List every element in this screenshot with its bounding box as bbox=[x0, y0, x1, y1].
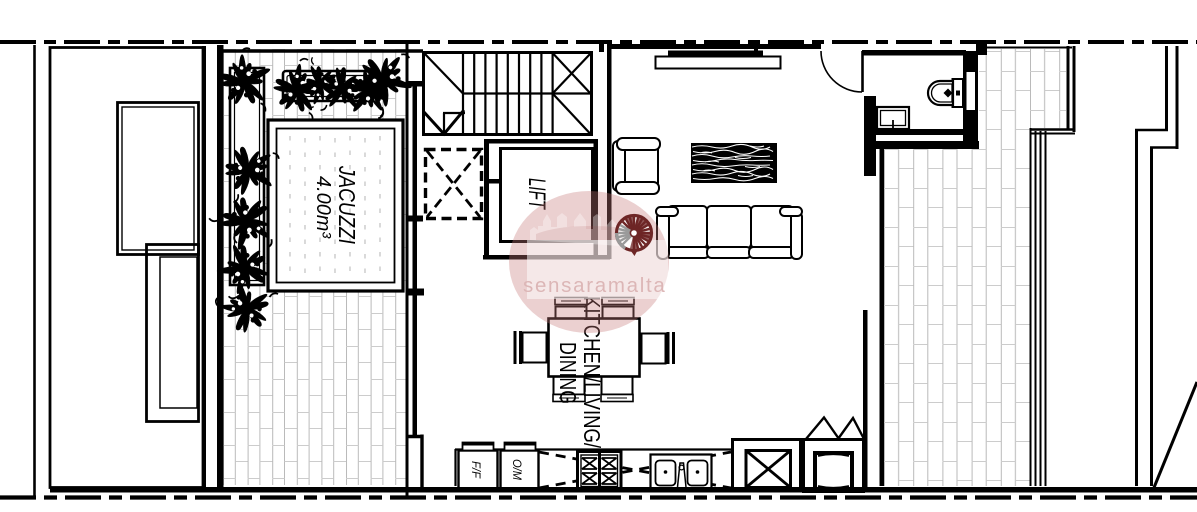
svg-text:O/M: O/M bbox=[510, 459, 524, 480]
svg-text:4.00m³: 4.00m³ bbox=[312, 176, 334, 239]
svg-text:F/F: F/F bbox=[469, 461, 483, 479]
svg-text:DINING: DINING bbox=[555, 342, 581, 404]
svg-text:sensaramalta: sensaramalta bbox=[523, 274, 666, 297]
svg-text:JACUZZI: JACUZZI bbox=[334, 165, 360, 244]
